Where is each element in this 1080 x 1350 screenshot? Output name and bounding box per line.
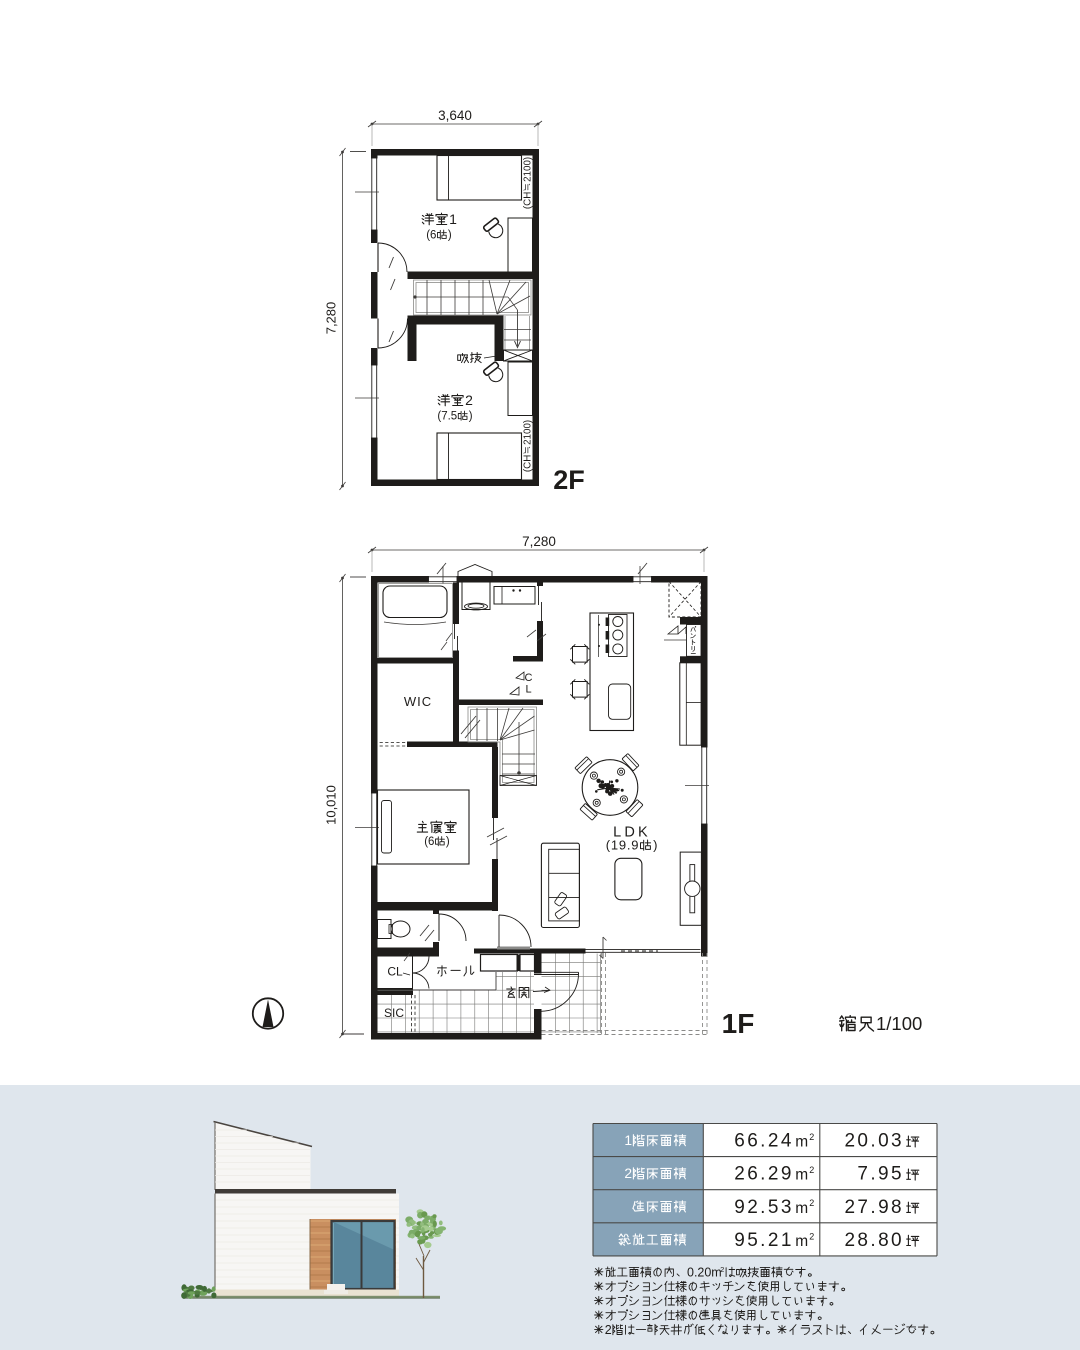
svg-text:(6: (6: [426, 230, 436, 242]
svg-text:WIC: WIC: [404, 694, 432, 709]
svg-text:1: 1: [449, 211, 457, 227]
svg-text:26.29: 26.29: [734, 1164, 794, 1185]
svg-text:2: 2: [624, 1166, 632, 1181]
svg-text:2F: 2F: [553, 465, 585, 495]
svg-text:m: m: [795, 1200, 808, 1217]
svg-text:2: 2: [809, 1231, 814, 1241]
svg-text:95.21: 95.21: [734, 1230, 794, 1251]
svg-text:0: 0: [687, 1265, 694, 1279]
svg-text:2: 2: [465, 392, 473, 408]
svg-text:CL: CL: [387, 965, 403, 979]
svg-text:L: L: [525, 684, 531, 696]
svg-text:10,010: 10,010: [324, 785, 339, 825]
svg-text:m: m: [795, 1233, 808, 1250]
svg-text:7,280: 7,280: [522, 534, 556, 549]
svg-text:(7.5: (7.5: [437, 411, 457, 423]
svg-text:): ): [653, 838, 658, 853]
svg-text:): ): [448, 230, 452, 242]
svg-text:m: m: [795, 1167, 808, 1184]
svg-text:1/100: 1/100: [876, 1013, 922, 1034]
svg-text:1F: 1F: [722, 1008, 755, 1039]
svg-text:2100): 2100): [523, 157, 534, 182]
svg-text:): ): [446, 836, 450, 848]
svg-text:2: 2: [809, 1198, 814, 1208]
svg-text:(19.9: (19.9: [606, 838, 640, 853]
svg-text:(CH: (CH: [523, 192, 534, 209]
svg-text:): ): [469, 411, 473, 423]
svg-text:C: C: [525, 672, 533, 684]
svg-text:2: 2: [720, 1265, 724, 1274]
svg-text:2100): 2100): [523, 420, 534, 445]
svg-text:SIC: SIC: [384, 1006, 404, 1020]
svg-text:27.98: 27.98: [844, 1197, 904, 1218]
svg-text:(6: (6: [424, 836, 434, 848]
svg-text:1: 1: [624, 1133, 632, 1148]
svg-text:92.53: 92.53: [734, 1197, 794, 1218]
svg-text:2: 2: [605, 1323, 612, 1337]
svg-text:28.80: 28.80: [844, 1230, 904, 1251]
svg-text:m: m: [795, 1134, 808, 1151]
svg-text:2: 2: [809, 1132, 814, 1142]
svg-text:7,280: 7,280: [324, 302, 339, 335]
svg-text:2: 2: [697, 1265, 704, 1279]
svg-text:(CH: (CH: [523, 455, 534, 472]
svg-text:2: 2: [809, 1165, 814, 1175]
svg-text:66.24: 66.24: [734, 1131, 794, 1152]
svg-text:3,640: 3,640: [438, 108, 472, 123]
svg-text:20.03: 20.03: [844, 1131, 904, 1152]
svg-text:7.95: 7.95: [857, 1164, 904, 1185]
